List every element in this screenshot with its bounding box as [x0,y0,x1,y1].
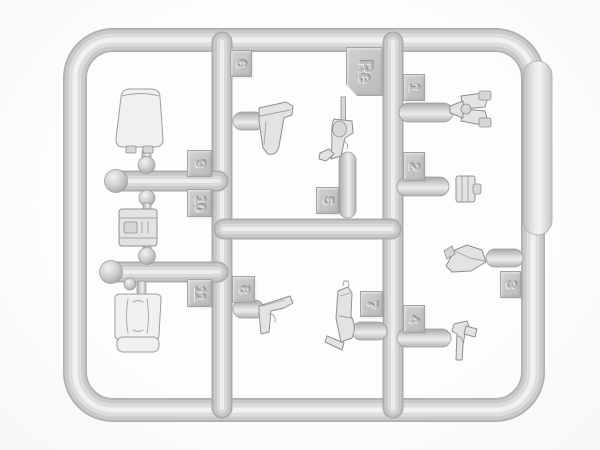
sprue-graphic [0,0,600,450]
part-holster-with-strap [325,281,354,350]
sprue-photo: 6 Re 1 2 9 10 11 5 8 7 4 3 [0,0,600,450]
part-pistol-muzzle-down [452,321,477,360]
sprue-feed-capsule [523,61,552,235]
tag-2-label: 2 [407,163,422,171]
part-holster-upper [259,102,293,154]
tag-re: Re [346,47,383,96]
tag-11-label: 11 [192,286,207,301]
part-equipment-box [119,209,157,246]
tag-10-label: 10 [192,195,207,211]
tag-7: 7 [360,291,383,317]
tag-3-label: 3 [503,281,518,289]
tag-4-label: 4 [407,315,422,323]
part-pistol [259,296,293,334]
tag-9-label: 9 [192,160,207,168]
part-ammo-pouch [456,176,481,202]
tag-9: 9 [187,150,212,177]
tag-6-label: 6 [234,60,249,68]
tag-3: 3 [500,271,521,298]
tag-re-label: Re [355,60,374,83]
tag-5-label: 5 [320,197,335,205]
tag-1: 1 [403,74,425,101]
tag-5: 5 [316,187,339,214]
part-revolver [319,97,353,161]
tag-6: 6 [230,50,252,77]
tag-4: 4 [403,305,425,333]
tag-8: 8 [232,276,255,303]
tag-8-label: 8 [236,286,251,294]
tag-11: 11 [187,279,212,307]
part-seat-backrest [116,89,163,153]
tag-7-label: 7 [364,300,379,308]
part-holster-flap [444,245,486,272]
tag-10: 10 [187,189,212,217]
part-binoculars [450,91,491,127]
tag-1-label: 1 [407,84,422,92]
part-seat-cushion [115,294,161,352]
tag-2: 2 [403,152,425,181]
